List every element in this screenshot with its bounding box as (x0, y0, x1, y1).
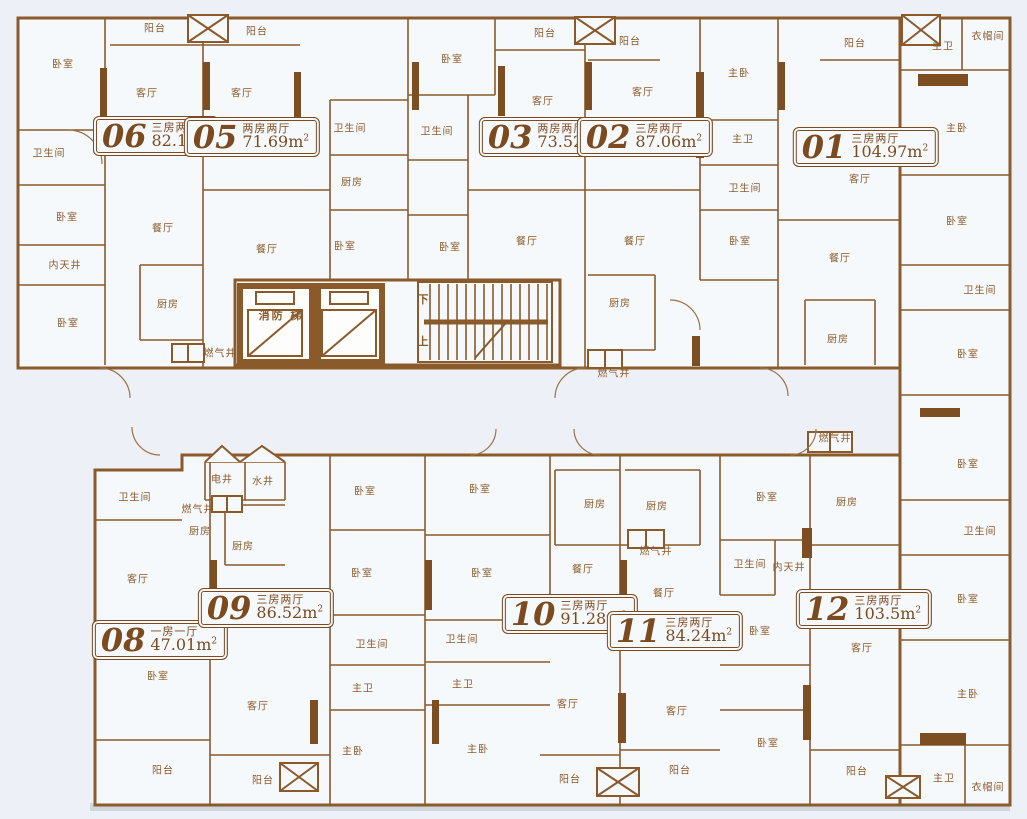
room-label: 卧室 (946, 213, 968, 228)
room-label: 餐厅 (624, 233, 646, 248)
room-label: 主卧 (728, 65, 750, 80)
room-label: 卫生间 (33, 145, 66, 160)
room-label: 卧室 (729, 233, 751, 248)
room-label: 卧室 (957, 456, 979, 471)
room-label: 内天井 (49, 257, 82, 272)
room-label: 卧室 (749, 623, 771, 638)
room-label: 卧室 (957, 346, 979, 361)
room-label: 主卫 (352, 680, 374, 695)
room-label: 内天井 (773, 559, 806, 574)
room-label: 电井 (211, 471, 233, 486)
unit-label-09: 09三房两厅86.52m2 (198, 588, 334, 628)
room-label: 卧室 (439, 239, 461, 254)
room-label: 阳台 (534, 25, 556, 40)
room-label: 卧室 (354, 483, 376, 498)
room-label: 衣帽间 (972, 779, 1005, 794)
room-label: 卫生间 (334, 120, 367, 135)
room-label: 衣帽间 (972, 28, 1005, 43)
unit-area: 84.24m2 (665, 628, 732, 645)
room-label: 卫生间 (729, 180, 762, 195)
unit-number: 11 (616, 615, 661, 647)
room-label: 餐厅 (256, 241, 278, 256)
room-label: 卧室 (756, 489, 778, 504)
unit-number: 09 (207, 592, 252, 624)
room-label: 燃气井 (182, 501, 215, 516)
room-label: 厨房 (232, 538, 254, 553)
unit-area: 71.69m2 (242, 134, 309, 151)
room-label: 卫生间 (356, 636, 389, 651)
room-label: 卧室 (147, 668, 169, 683)
room-label: 卫生间 (964, 523, 997, 538)
room-label: 餐厅 (829, 250, 851, 265)
room-label: 主卫 (452, 676, 474, 691)
room-label: 厨房 (827, 331, 849, 346)
room-label: 卫生间 (119, 489, 152, 504)
room-label: 卧室 (957, 591, 979, 606)
unit-area: 87.06m2 (635, 134, 702, 151)
room-label: 燃气井 (640, 543, 673, 558)
unit-number: 06 (102, 120, 147, 152)
room-label: 厨房 (646, 498, 668, 513)
room-label: 卫生间 (734, 556, 767, 571)
room-label: 阳台 (152, 762, 174, 777)
room-label: 厨房 (584, 496, 606, 511)
room-label: 卧室 (334, 238, 356, 253)
room-label: 餐厅 (516, 233, 538, 248)
room-label: 主卧 (467, 741, 489, 756)
room-label: 燃气井 (598, 365, 631, 380)
room-label: 卫生间 (421, 123, 454, 138)
unit-label-05: 05两房两厅71.69m2 (184, 117, 320, 157)
room-label: 卧室 (57, 315, 79, 330)
room-label: 餐厅 (152, 220, 174, 235)
unit-number: 10 (511, 598, 556, 630)
room-label: 阳台 (252, 772, 274, 787)
unit-label-01: 01三房两厅104.97m2 (793, 127, 939, 167)
room-label: 主卫 (933, 770, 955, 785)
room-label: 主卫 (932, 38, 954, 53)
unit-area: 86.52m2 (256, 605, 323, 622)
room-label: 主卧 (946, 120, 968, 135)
stair-up-label: 上 (418, 333, 431, 349)
room-label: 阳台 (144, 20, 166, 35)
room-label: 客厅 (127, 571, 149, 586)
room-label: 阳台 (559, 771, 581, 786)
room-label: 主卧 (957, 686, 979, 701)
room-label: 燃气井 (819, 430, 852, 445)
unit-label-12: 12三房两厅103.5m2 (796, 589, 932, 629)
room-label: 客厅 (247, 698, 269, 713)
unit-number: 02 (586, 121, 631, 153)
room-label: 餐厅 (653, 585, 675, 600)
room-label: 厨房 (836, 494, 858, 509)
room-label: 卧室 (351, 565, 373, 580)
room-label: 客厅 (632, 84, 654, 99)
floorplan-page: 阳台阳台卧室客厅卫生间卧室内天井卧室餐厅厨房燃气井客厅餐厅卫生间厨房卧室阳台卧室… (0, 0, 1027, 819)
room-label: 卫生间 (964, 282, 997, 297)
room-label: 阳台 (846, 763, 868, 778)
fire-elevator-icon (240, 286, 312, 362)
room-label: 卧室 (471, 565, 493, 580)
room-label: 阳台 (246, 23, 268, 38)
fire-elevator-label: 消防 梯 (259, 307, 304, 323)
room-label: 客厅 (231, 85, 253, 100)
stair-down-label: 下 (418, 291, 431, 307)
unit-number: 01 (802, 131, 847, 163)
room-label: 卧室 (757, 735, 779, 750)
room-label: 客厅 (532, 93, 554, 108)
unit-label-11: 11三房两厅84.24m2 (607, 611, 743, 651)
room-label: 卧室 (469, 481, 491, 496)
room-label: 主卫 (732, 131, 754, 146)
unit-number: 12 (805, 593, 850, 625)
elevator-icon (318, 286, 382, 362)
room-label: 客厅 (851, 640, 873, 655)
room-label: 卧室 (52, 56, 74, 71)
room-label: 厨房 (157, 296, 179, 311)
room-label: 客厅 (666, 703, 688, 718)
room-label: 阳台 (619, 33, 641, 48)
room-label: 客厅 (557, 696, 579, 711)
unit-label-02: 02三房两厅87.06m2 (577, 117, 713, 157)
room-label: 阳台 (844, 35, 866, 50)
room-label: 厨房 (609, 295, 631, 310)
room-label: 客厅 (136, 85, 158, 100)
unit-number: 03 (488, 121, 533, 153)
unit-number: 08 (101, 624, 146, 656)
room-label: 卧室 (441, 51, 463, 66)
room-label: 厨房 (189, 523, 211, 538)
room-label: 主卧 (342, 743, 364, 758)
room-label: 燃气井 (204, 345, 237, 360)
room-label: 餐厅 (572, 561, 594, 576)
unit-area: 47.01m2 (150, 637, 217, 654)
room-label: 卧室 (56, 209, 78, 224)
room-label: 水井 (252, 473, 274, 488)
room-label: 厨房 (341, 174, 363, 189)
unit-number: 05 (193, 121, 238, 153)
unit-area: 103.5m2 (854, 606, 921, 623)
room-label: 客厅 (849, 171, 871, 186)
unit-area: 104.97m2 (851, 144, 928, 161)
room-label: 阳台 (669, 762, 691, 777)
room-label: 卫生间 (446, 631, 479, 646)
